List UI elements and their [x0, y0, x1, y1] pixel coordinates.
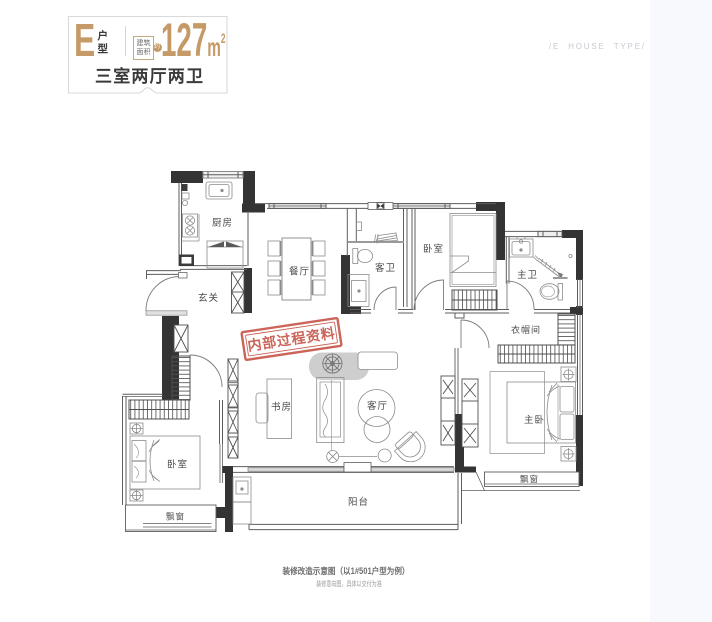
svg-text:阳台: 阳台	[348, 496, 369, 508]
svg-text:客卫: 客卫	[375, 262, 396, 274]
svg-text:书房: 书房	[271, 401, 292, 413]
svg-text:主卧: 主卧	[524, 414, 545, 426]
svg-text:餐厅: 餐厅	[289, 266, 310, 278]
svg-text:飘窗: 飘窗	[520, 474, 539, 484]
svg-text:卧室: 卧室	[167, 459, 188, 471]
svg-text:玄关: 玄关	[198, 292, 219, 304]
svg-text:卧室: 卧室	[423, 243, 444, 255]
svg-text:飘窗: 飘窗	[166, 512, 185, 522]
svg-text:主卫: 主卫	[517, 269, 538, 281]
svg-text:客厅: 客厅	[367, 400, 388, 412]
svg-text:衣帽间: 衣帽间	[511, 324, 541, 335]
svg-text:厨房: 厨房	[212, 217, 233, 229]
